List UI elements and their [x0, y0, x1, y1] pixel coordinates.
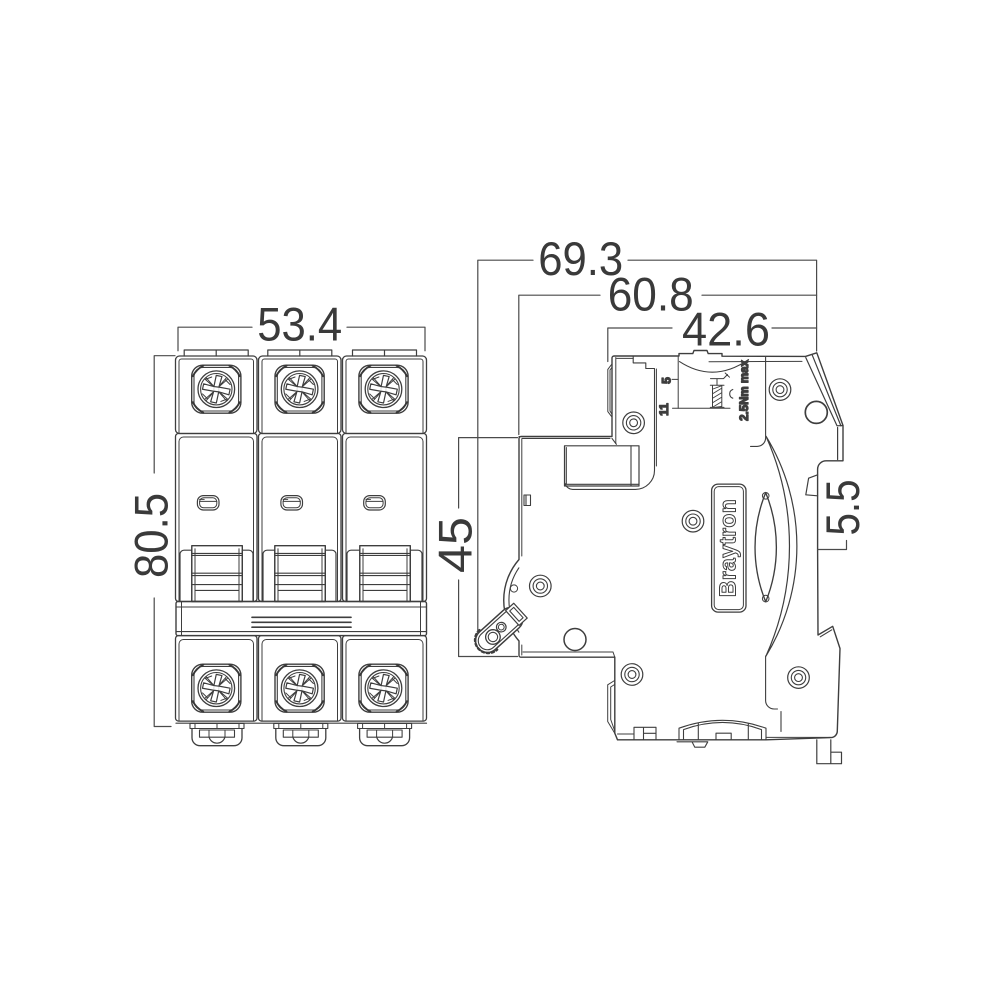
svg-text:53.4: 53.4: [257, 299, 342, 352]
svg-text:5.5: 5.5: [817, 480, 870, 536]
svg-text:60.8: 60.8: [608, 269, 694, 322]
svg-text:45: 45: [430, 517, 483, 573]
svg-text:5: 5: [660, 377, 674, 384]
svg-text:11: 11: [657, 403, 671, 416]
svg-text:42.6: 42.6: [682, 304, 770, 357]
svg-text:80.5: 80.5: [126, 493, 179, 578]
svg-text:Braytron: Braytron: [715, 499, 741, 597]
svg-text:2.5Nm max: 2.5Nm max: [739, 360, 751, 421]
